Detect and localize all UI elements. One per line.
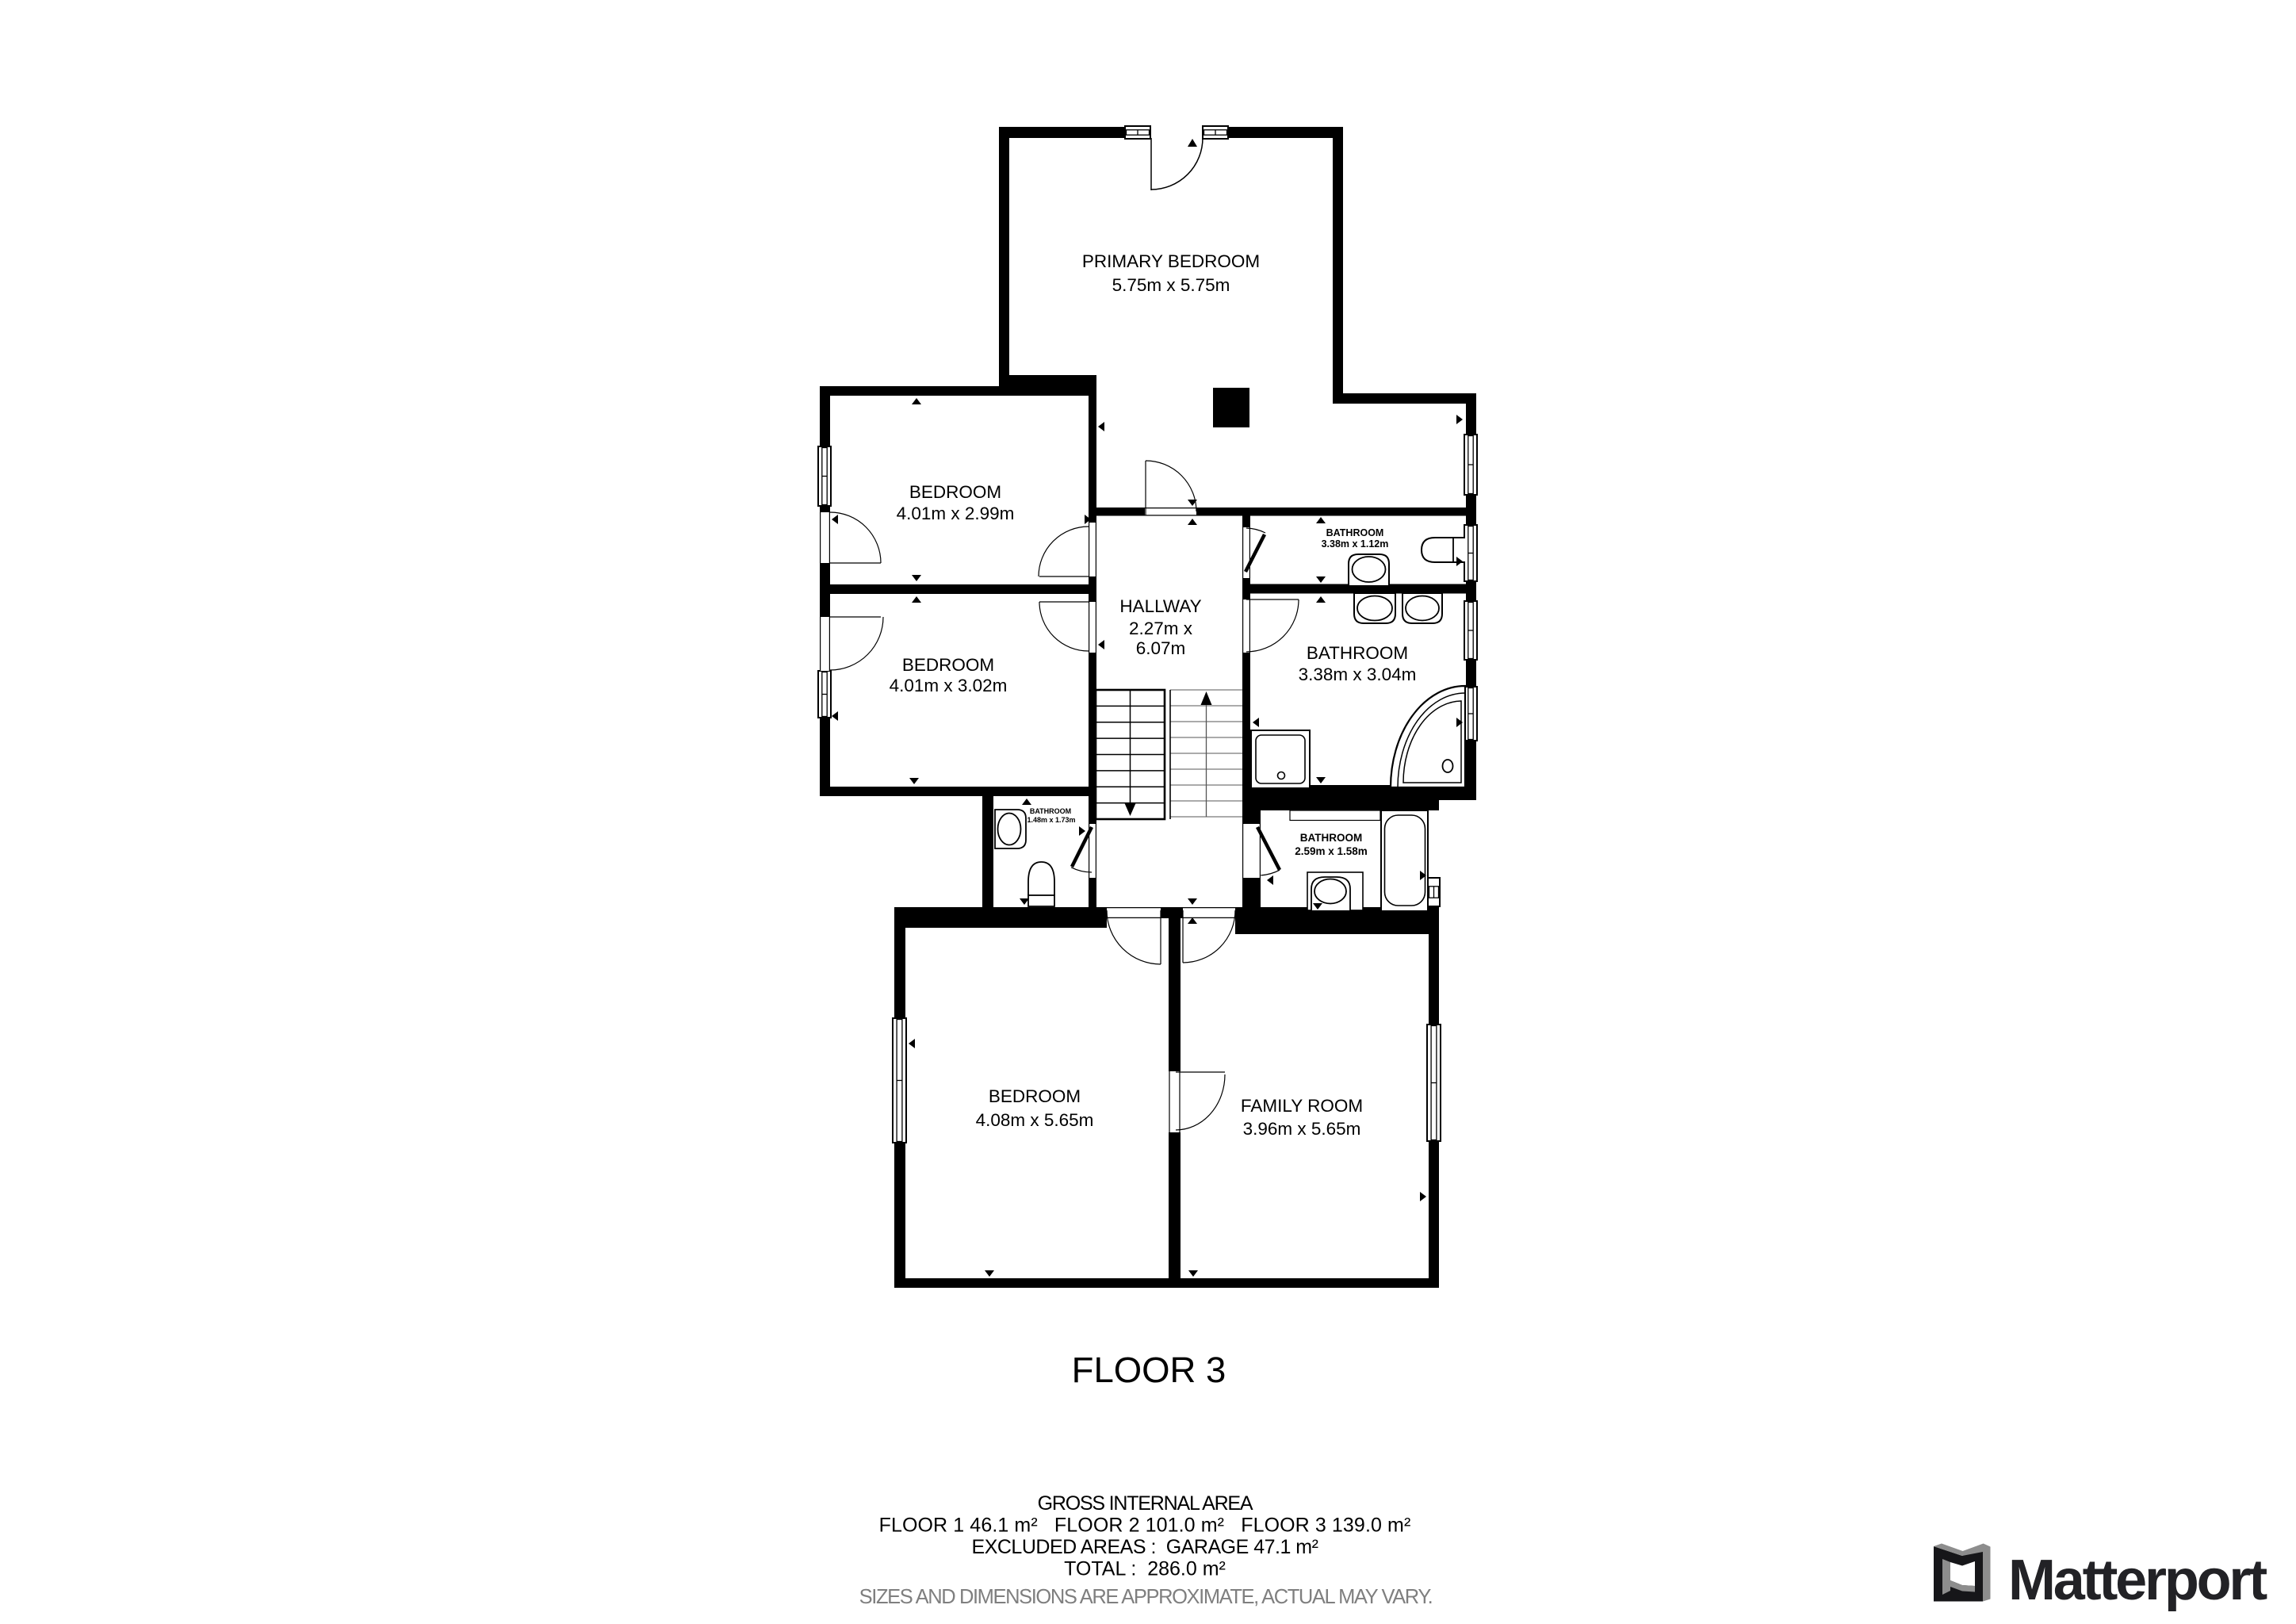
svg-text:3.96m x 5.65m: 3.96m x 5.65m: [1243, 1119, 1361, 1139]
svg-text:5.75m x 5.75m: 5.75m x 5.75m: [1112, 275, 1230, 295]
svg-text:PRIMARY BEDROOM: PRIMARY BEDROOM: [1082, 251, 1260, 271]
svg-text:BEDROOM: BEDROOM: [902, 655, 994, 675]
svg-text:3.38m x 1.12m: 3.38m x 1.12m: [1322, 538, 1389, 550]
svg-text:EXCLUDED AREAS : GARAGE 47.1: EXCLUDED AREAS : GARAGE 47.1 m²: [972, 1536, 1318, 1558]
svg-text:6.07m: 6.07m: [1136, 638, 1186, 658]
svg-text:Matterport: Matterport: [2008, 1549, 2267, 1612]
svg-text:BATHROOM: BATHROOM: [1030, 807, 1071, 815]
svg-text:BATHROOM: BATHROOM: [1300, 832, 1363, 844]
svg-text:FLOOR 3: FLOOR 3: [1072, 1350, 1226, 1390]
svg-text:4.01m x 3.02m: 4.01m x 3.02m: [890, 676, 1008, 695]
svg-text:HALLWAY: HALLWAY: [1119, 596, 1201, 616]
svg-text:2.59m x 1.58m: 2.59m x 1.58m: [1295, 845, 1368, 857]
svg-text:BATHROOM: BATHROOM: [1326, 527, 1384, 538]
svg-text:FLOOR 1 46.1 m² FLOOR 2 101.: FLOOR 1 46.1 m² FLOOR 2 101.0 m² FLOOR 3…: [879, 1515, 1411, 1537]
svg-text:4.01m x 2.99m: 4.01m x 2.99m: [897, 504, 1015, 523]
svg-text:TOTAL : 286.0 m²: TOTAL : 286.0 m²: [1064, 1558, 1226, 1580]
svg-text:4.08m x 5.65m: 4.08m x 5.65m: [976, 1110, 1094, 1130]
svg-text:GROSS INTERNAL AREA: GROSS INTERNAL AREA: [1038, 1492, 1253, 1515]
svg-text:2.27m x: 2.27m x: [1129, 619, 1193, 638]
svg-text:SIZES AND DIMENSIONS ARE APPRO: SIZES AND DIMENSIONS ARE APPROXIMATE, AC…: [859, 1586, 1433, 1608]
svg-text:3.38m x 3.04m: 3.38m x 3.04m: [1299, 665, 1417, 684]
svg-text:BEDROOM: BEDROOM: [909, 482, 1001, 502]
svg-text:BEDROOM: BEDROOM: [989, 1086, 1081, 1106]
svg-text:FAMILY ROOM: FAMILY ROOM: [1241, 1096, 1363, 1116]
svg-text:BATHROOM: BATHROOM: [1307, 643, 1408, 663]
svg-text:1.48m x 1.73m: 1.48m x 1.73m: [1027, 816, 1075, 824]
